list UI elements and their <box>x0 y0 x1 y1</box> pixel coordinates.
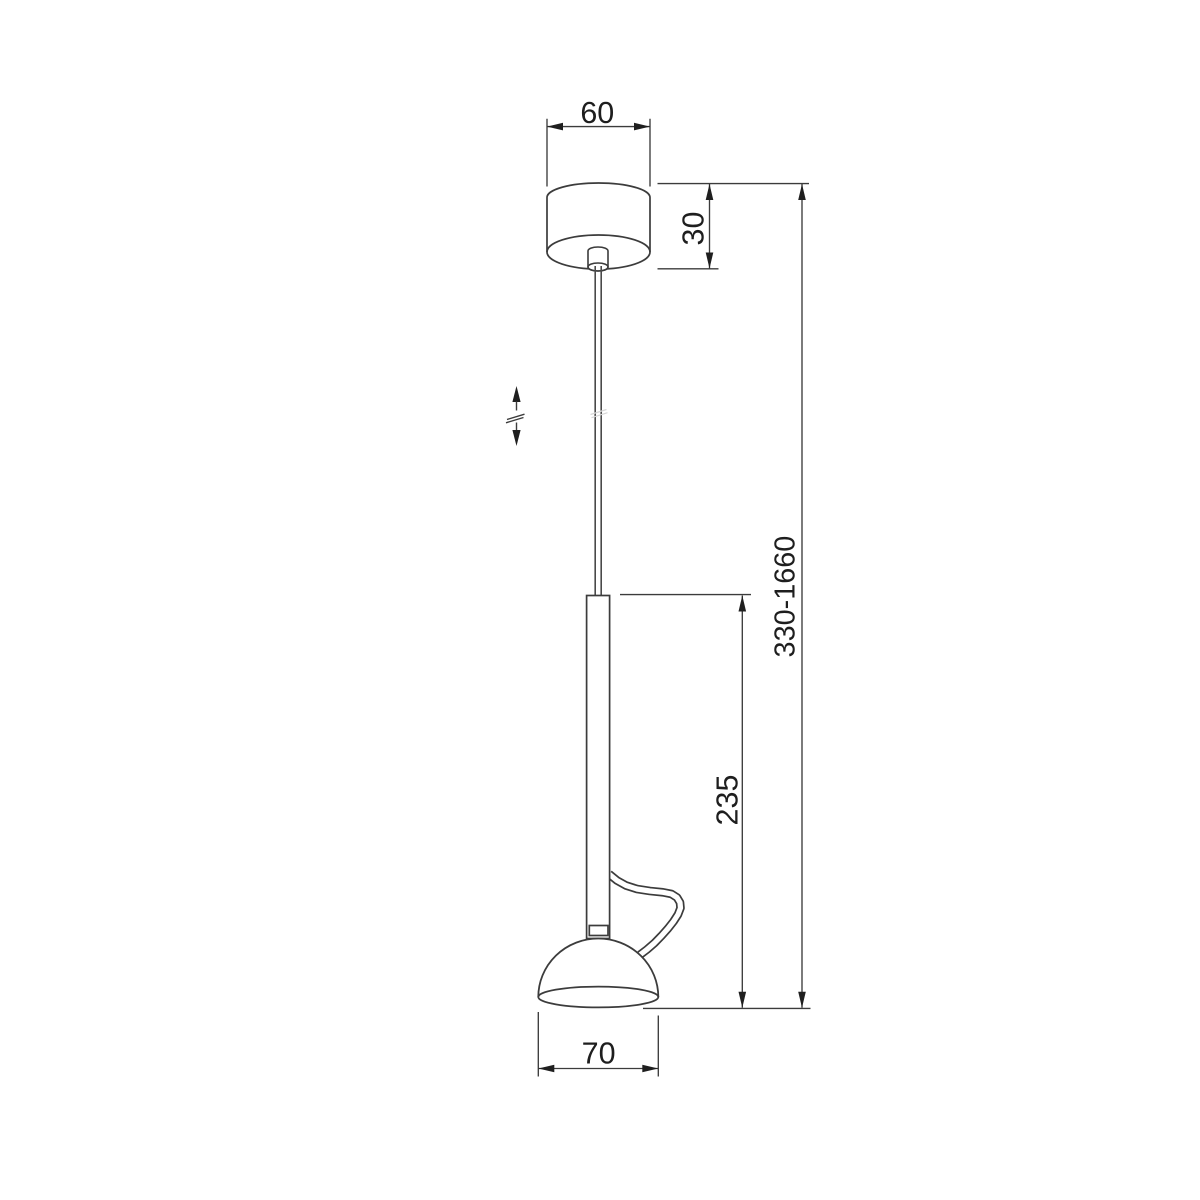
svg-text:60: 60 <box>580 96 614 130</box>
svg-text:30: 30 <box>677 212 711 246</box>
svg-text:330-1660: 330-1660 <box>770 536 802 658</box>
svg-text:235: 235 <box>711 775 745 826</box>
svg-text:70: 70 <box>582 1037 616 1071</box>
